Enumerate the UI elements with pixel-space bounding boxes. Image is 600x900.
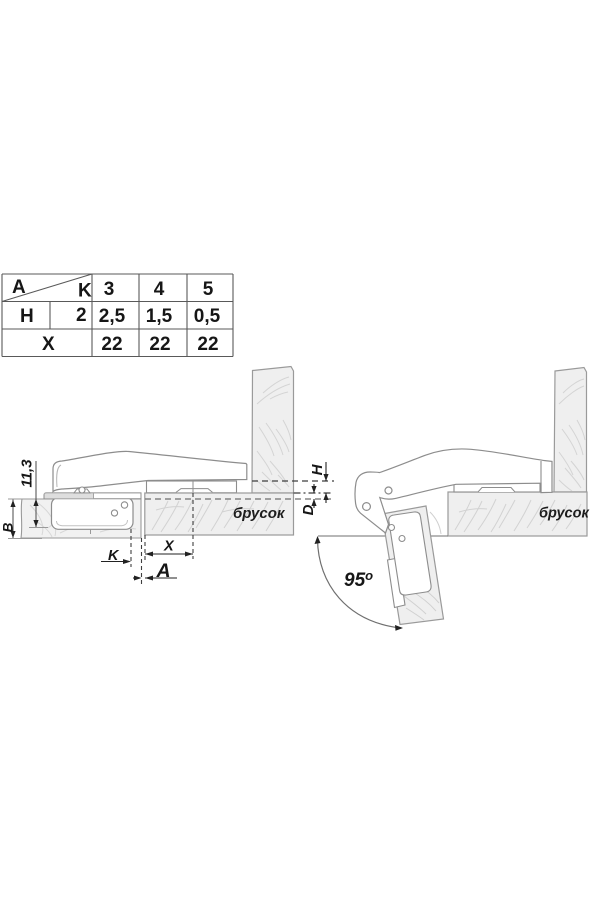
svg-text:X: X: [163, 539, 175, 555]
svg-text:H: H: [20, 306, 34, 327]
svg-text:22: 22: [197, 334, 218, 355]
svg-text:X: X: [42, 334, 55, 355]
svg-text:5: 5: [203, 279, 214, 300]
svg-text:22: 22: [101, 334, 122, 355]
svg-text:11,3: 11,3: [19, 459, 36, 488]
svg-text:2: 2: [76, 305, 87, 326]
svg-text:A: A: [156, 560, 171, 582]
svg-text:H: H: [309, 463, 326, 475]
svg-text:95o: 95o: [344, 568, 373, 591]
svg-text:1,5: 1,5: [146, 306, 173, 327]
svg-text:3: 3: [104, 279, 115, 300]
svg-text:K: K: [78, 281, 92, 302]
svg-text:брусок: брусок: [539, 506, 589, 522]
svg-text:4: 4: [154, 279, 165, 300]
svg-text:D: D: [300, 504, 317, 515]
svg-text:0,5: 0,5: [194, 306, 221, 327]
svg-text:K: K: [108, 548, 120, 564]
svg-text:A: A: [12, 277, 26, 298]
svg-text:2,5: 2,5: [99, 306, 126, 327]
svg-text:22: 22: [149, 334, 170, 355]
svg-text:брусок: брусок: [233, 505, 286, 522]
svg-text:B: B: [0, 522, 15, 532]
